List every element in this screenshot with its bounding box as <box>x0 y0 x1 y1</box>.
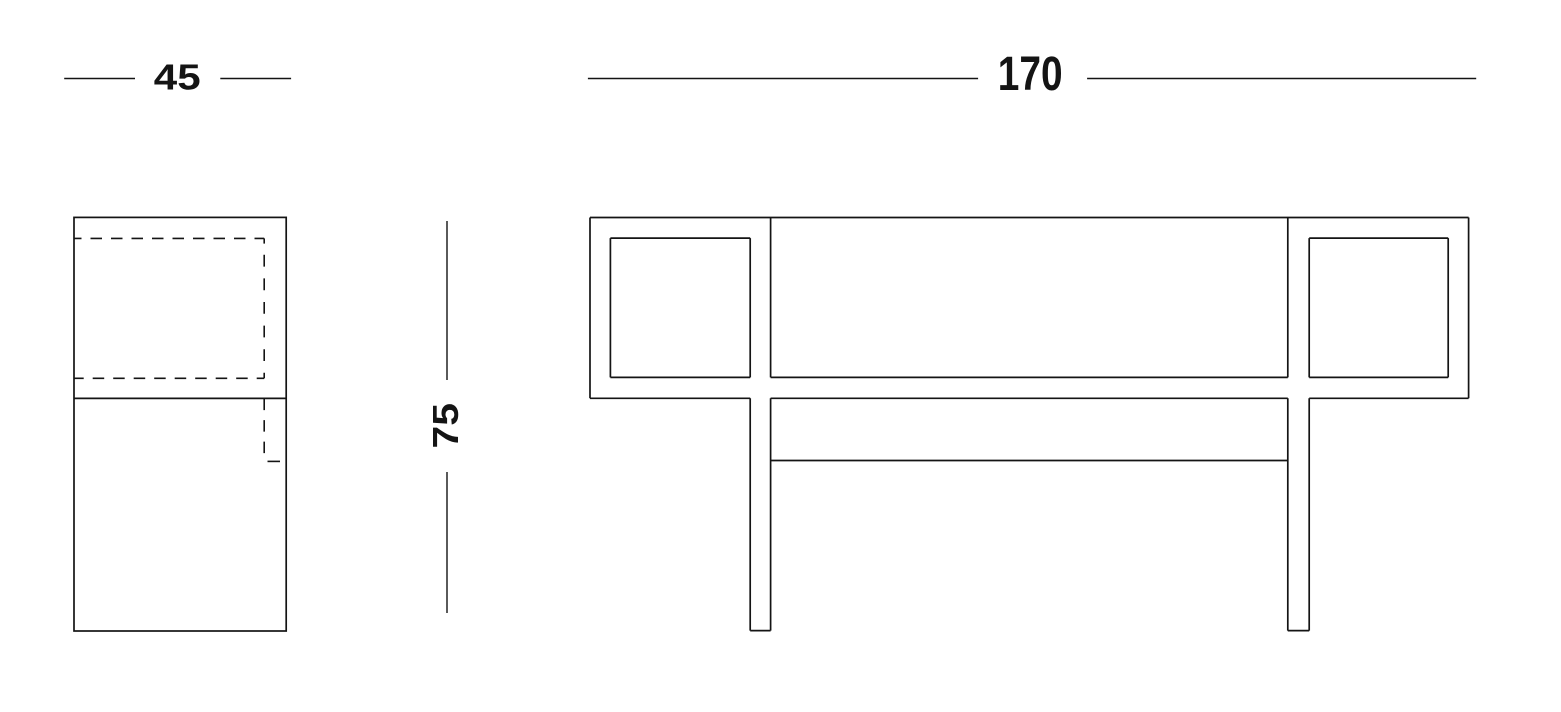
svg-text:170: 170 <box>998 47 1063 101</box>
svg-text:75: 75 <box>426 403 466 448</box>
svg-text:45: 45 <box>154 57 201 98</box>
